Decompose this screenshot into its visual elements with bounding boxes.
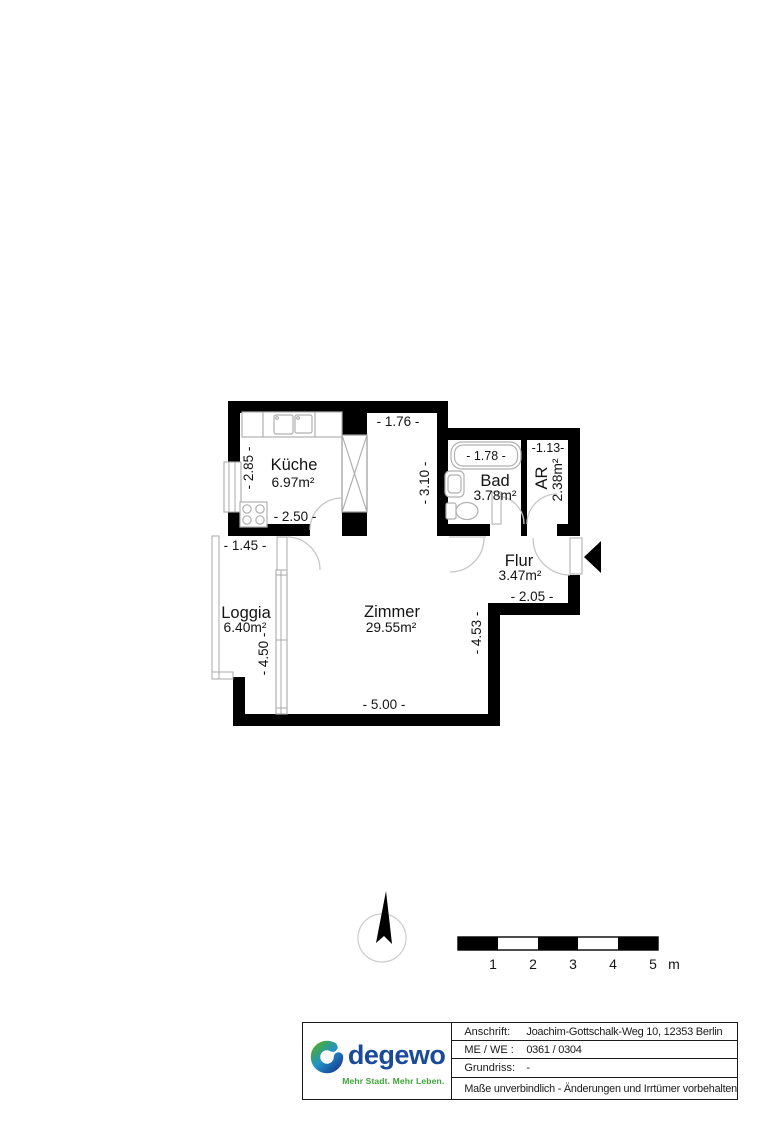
- title-block-row-anschrift: Anschrift: Joachim-Gottschalk-Weg 10, 12…: [452, 1023, 737, 1041]
- title-block: degewo Mehr Stadt. Mehr Leben. Anschrift…: [302, 1022, 738, 1100]
- dim-corridor-width: - 1.76 -: [377, 414, 420, 429]
- wall-flur-bottom: [488, 603, 580, 615]
- wall-bad-bottom: [437, 524, 490, 536]
- entrance-door-leaf: [570, 538, 582, 574]
- room-label-ar: AR: [533, 466, 551, 489]
- degewo-logo: degewo Mehr Stadt. Mehr Leben.: [303, 1023, 452, 1099]
- wall-shaft-bottom: [342, 512, 367, 536]
- dim-kueche-width: - 2.50 -: [274, 509, 317, 524]
- dim-loggia-height: - 4.50 -: [256, 633, 271, 676]
- windows: [212, 462, 287, 714]
- north-arrow-icon: [358, 891, 406, 962]
- bath-sink: [445, 471, 464, 497]
- title-block-row-grundriss: Grundriss: -: [452, 1059, 737, 1078]
- installation-shaft: [342, 435, 367, 512]
- scale-bar: 1 2 3 4 5 m: [458, 937, 680, 972]
- field-label: Grundriss:: [464, 1062, 526, 1074]
- field-label: ME / WE :: [464, 1044, 526, 1056]
- dim-flur-width: - 2.05 -: [511, 589, 554, 604]
- kitchen-sink-2: [295, 415, 312, 433]
- dim-ar-width: -1.13-: [532, 441, 565, 455]
- degewo-wordmark: degewo: [348, 1042, 446, 1069]
- zimmer-flur-door-arc: [450, 538, 484, 572]
- entrance-arrow-icon: [584, 541, 601, 573]
- room-label-kueche: Küche: [271, 456, 318, 474]
- loggia-railing-left: [212, 536, 219, 679]
- dim-zimmer-height: - 4.53 -: [469, 612, 484, 655]
- title-block-row-me-we: ME / WE : 0361 / 0304: [452, 1041, 737, 1059]
- dim-corridor-height: - 3.10 -: [417, 462, 432, 505]
- dim-loggia-width: - 1.45 -: [224, 538, 267, 553]
- title-block-rows: Anschrift: Joachim-Gottschalk-Weg 10, 12…: [452, 1023, 737, 1099]
- kueche-window: [224, 462, 241, 512]
- wall-shaft-top: [342, 413, 367, 435]
- wall-left-bottom: [233, 677, 245, 726]
- dim-zimmer-width: - 5.00 -: [363, 697, 406, 712]
- wall-ar-bottom: [557, 524, 580, 536]
- dim-kueche-height: - 2.85 -: [241, 447, 256, 490]
- loggia-door-arc: [287, 537, 320, 570]
- wall-bad-ar-top: [448, 428, 580, 440]
- scale-tick-5: 5: [649, 956, 657, 972]
- disclaimer-text: Maße unverbindlich - Änderungen und Irrt…: [452, 1078, 737, 1099]
- stove: [240, 502, 267, 527]
- wall-top: [228, 401, 448, 413]
- toilet: [446, 503, 478, 520]
- scale-tick-1: 1: [489, 956, 497, 972]
- wall-bottom: [233, 714, 500, 726]
- floor-plan-sheet: Küche 6.97m² Bad 3.78m² AR 2.38m² Flur 3…: [0, 0, 761, 1140]
- dim-bathtub-width: - 1.78 -: [466, 449, 506, 463]
- wall-right-upper: [568, 428, 580, 524]
- field-label: Anschrift:: [464, 1026, 526, 1038]
- scale-tick-2: 2: [529, 956, 537, 972]
- room-area-bad: 3.78m²: [474, 488, 517, 503]
- room-area-zimmer: 29.55m²: [366, 620, 417, 635]
- wall-left-upper: [228, 401, 240, 462]
- scale-tick-3: 3: [569, 956, 577, 972]
- kitchen-sink: [274, 415, 293, 434]
- floor-plan-drawing: Küche 6.97m² Bad 3.78m² AR 2.38m² Flur 3…: [0, 0, 761, 1140]
- room-label-zimmer: Zimmer: [364, 603, 420, 621]
- scale-tick-4: 4: [609, 956, 617, 972]
- degewo-tagline: Mehr Stadt. Mehr Leben.: [307, 1076, 447, 1086]
- field-value: -: [526, 1062, 529, 1074]
- kitchen-counter: [242, 412, 342, 437]
- field-value: 0361 / 0304: [526, 1044, 581, 1056]
- room-area-kueche: 6.97m²: [272, 475, 315, 490]
- room-area-flur: 3.47m²: [499, 568, 542, 583]
- wall-zimmer-east: [488, 603, 500, 726]
- loggia-door-leaf: [277, 537, 287, 570]
- room-area-ar: 2.38m²: [550, 458, 565, 501]
- field-value: Joachim-Gottschalk-Weg 10, 12353 Berlin: [526, 1026, 722, 1038]
- loggia-railing-bottom: [212, 672, 233, 679]
- scale-unit: m: [668, 956, 680, 972]
- degewo-logo-mark-icon: [309, 1037, 345, 1075]
